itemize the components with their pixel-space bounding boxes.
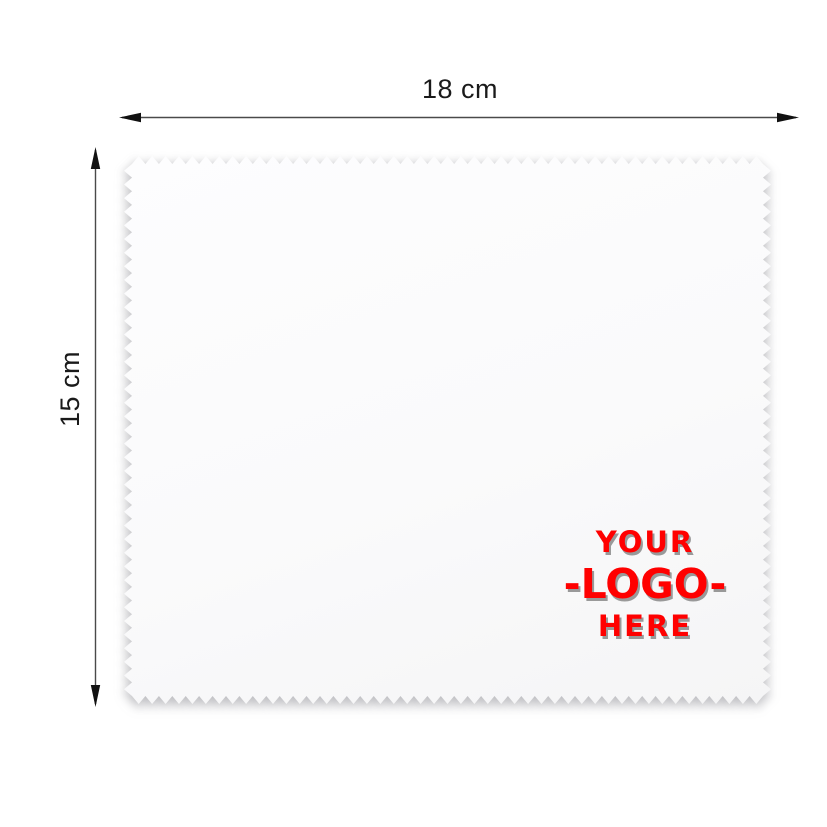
width-arrow-right-head-icon bbox=[777, 113, 799, 122]
width-dimension-label: 18 cm bbox=[370, 74, 550, 105]
logo-line-here: HERE bbox=[560, 608, 730, 645]
logo-placeholder: YOUR -LOGO- HERE bbox=[560, 524, 730, 645]
logo-line-logo: -LOGO- bbox=[560, 561, 730, 608]
product-dimension-image: 18 cm 15 cm YOUR -LOGO- HERE bbox=[0, 0, 827, 827]
cleaning-cloth: YOUR -LOGO- HERE bbox=[124, 156, 771, 704]
height-arrow-top-head-icon bbox=[91, 147, 100, 169]
cloth-surface: YOUR -LOGO- HERE bbox=[124, 156, 771, 704]
height-dimension-arrow bbox=[91, 147, 100, 707]
logo-line-your: YOUR bbox=[560, 524, 730, 561]
height-dimension-label: 15 cm bbox=[54, 329, 86, 449]
height-arrow-bottom-head-icon bbox=[91, 685, 100, 707]
width-arrow-left-head-icon bbox=[119, 113, 141, 122]
width-dimension-arrow bbox=[119, 113, 799, 122]
